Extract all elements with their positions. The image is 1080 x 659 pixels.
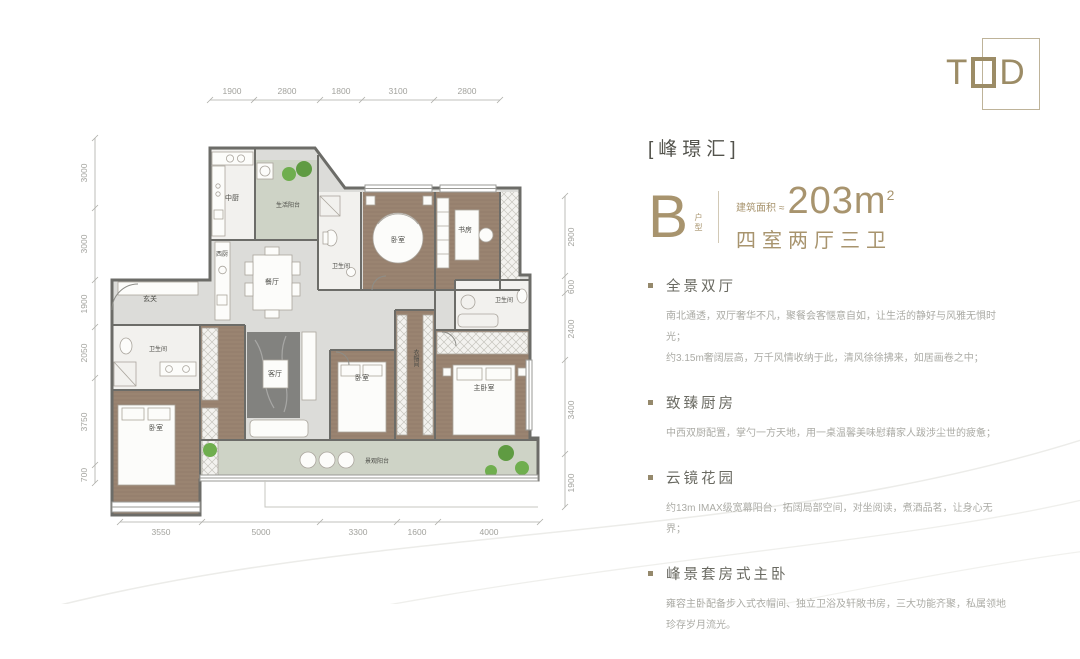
dim-top-4: 3100 [389,86,408,96]
room-label-master-bedroom: 主卧室 [474,383,495,392]
room-label-landscape-balcony: 景观阳台 [365,457,389,465]
feature-title: 云镜花园 [666,467,736,488]
dim-top-5: 2800 [458,86,477,96]
square-bullet-icon [648,400,653,405]
project-name: [峰璟汇] [648,134,1008,161]
room-label-bedroom-2: 卧室 [391,235,405,244]
feature-title: 致臻厨房 [666,392,736,413]
dim-bottom-2: 5000 [252,527,271,537]
room-label-dining: 餐厅 [265,277,279,286]
vertical-divider [718,191,719,243]
room-label-bedroom-3: 卧室 [355,373,369,382]
info-panel: [峰璟汇] B 户型 建筑面积 ≈ 203m 2 四室两厅三卫 全景双厅 南北通… [648,134,1008,659]
dim-left-6: 700 [79,468,89,482]
square-bullet-icon [648,283,653,288]
room-label-bath-left: 卫生间 [149,345,167,353]
square-bullet-icon [648,475,653,480]
feature-title: 峰景套房式主卧 [666,563,789,584]
square-bullet-icon [648,571,653,576]
logo-letter-t: T [946,55,968,90]
feature-kitchen: 致臻厨房 中西双厨配置，掌勺一方天地，用一桌温馨美味慰藉家人跋涉尘世的疲惫； [648,392,1008,444]
dim-right-1: 2900 [566,227,576,246]
room-label-foyer: 玄关 [143,294,157,303]
area-value: 203m [788,182,887,220]
dim-top-3: 1800 [332,86,351,96]
room-label-service-balcony: 生活阳台 [276,201,300,209]
dim-left-2: 3000 [79,234,89,253]
dim-bottom-5: 4000 [480,527,499,537]
feature-body-line: 约3.15m奢阔层高，万千风情收纳于此，清风徐徐拂来，如居画卷之中； [666,348,1008,369]
floor-plan: 中厨 生活阳台 餐厅 西厨 玄关 卫生间 卧室 书房 卫生间 卫生间 卧室 客厅… [60,70,600,550]
room-label-bath-right: 卫生间 [495,296,513,304]
logo-letter-d: D [999,55,1025,90]
dim-left-3: 1900 [79,294,89,313]
room-label-bath-top: 卫生间 [332,262,350,270]
room-label-living: 客厅 [268,369,282,378]
dim-left-5: 3750 [79,412,89,431]
dim-top-1: 1900 [223,86,242,96]
unit-type-label: 户型 [693,213,704,239]
dim-top-2: 2800 [278,86,297,96]
room-label-west-kitchen: 西厨 [216,251,228,258]
dim-bottom-4: 1600 [408,527,427,537]
unit-summary: B 户型 建筑面积 ≈ 203m 2 四室两厅三卫 [648,185,1008,249]
rooms-summary: 四室两厅三卫 [736,224,894,253]
feature-body-line: 约13m IMAX级宽幕阳台，拓阔局部空间，对坐阅读，煮酒品茗，让身心无界； [666,498,1008,540]
logo-square-o-icon [971,57,996,88]
dim-right-2: 600 [566,280,576,294]
feature-body-line: 南北通透，双厅奢华不凡，聚餐会客惬意自如，让生活的静好与风雅无惧时光； [666,306,1008,348]
approx-symbol: ≈ [779,204,785,214]
tod-logo: T D [946,38,1046,116]
room-label-kitchen: 中厨 [225,193,239,202]
feature-body-line: 雍容主卧配备步入式衣帽间、独立卫浴及轩敞书房，三大功能齐聚，私属领地珍存岁月流光… [666,594,1008,636]
dim-left-1: 3000 [79,163,89,182]
room-label-walkin-closet: 衣帽间 [412,348,419,368]
dim-left-4: 2050 [79,343,89,362]
feature-master-suite: 峰景套房式主卧 雍容主卧配备步入式衣帽间、独立卫浴及轩敞书房，三大功能齐聚，私属… [648,563,1008,636]
dim-right-3: 2400 [566,319,576,338]
feature-list: 全景双厅 南北通透，双厅奢华不凡，聚餐会客惬意自如，让生活的静好与风雅无惧时光；… [648,275,1008,636]
area-label: 建筑面积 [736,204,776,214]
feature-title: 全景双厅 [666,275,736,296]
area-superscript: 2 [887,188,895,202]
dim-bottom-3: 3300 [349,527,368,537]
feature-garden: 云镜花园 约13m IMAX级宽幕阳台，拓阔局部空间，对坐阅读，煮酒品茗，让身心… [648,467,1008,540]
room-label-bedroom-1: 卧室 [149,423,163,432]
unit-type-letter: B [648,187,688,247]
feature-body-line: 中西双厨配置，掌勺一方天地，用一桌温馨美味慰藉家人跋涉尘世的疲惫； [666,423,1008,444]
dim-right-4: 3400 [566,400,576,419]
room-label-study: 书房 [458,225,472,234]
dim-right-5: 1900 [566,473,576,492]
dim-bottom-1: 3550 [152,527,171,537]
feature-double-hall: 全景双厅 南北通透，双厅奢华不凡，聚餐会客惬意自如，让生活的静好与风雅无惧时光；… [648,275,1008,369]
